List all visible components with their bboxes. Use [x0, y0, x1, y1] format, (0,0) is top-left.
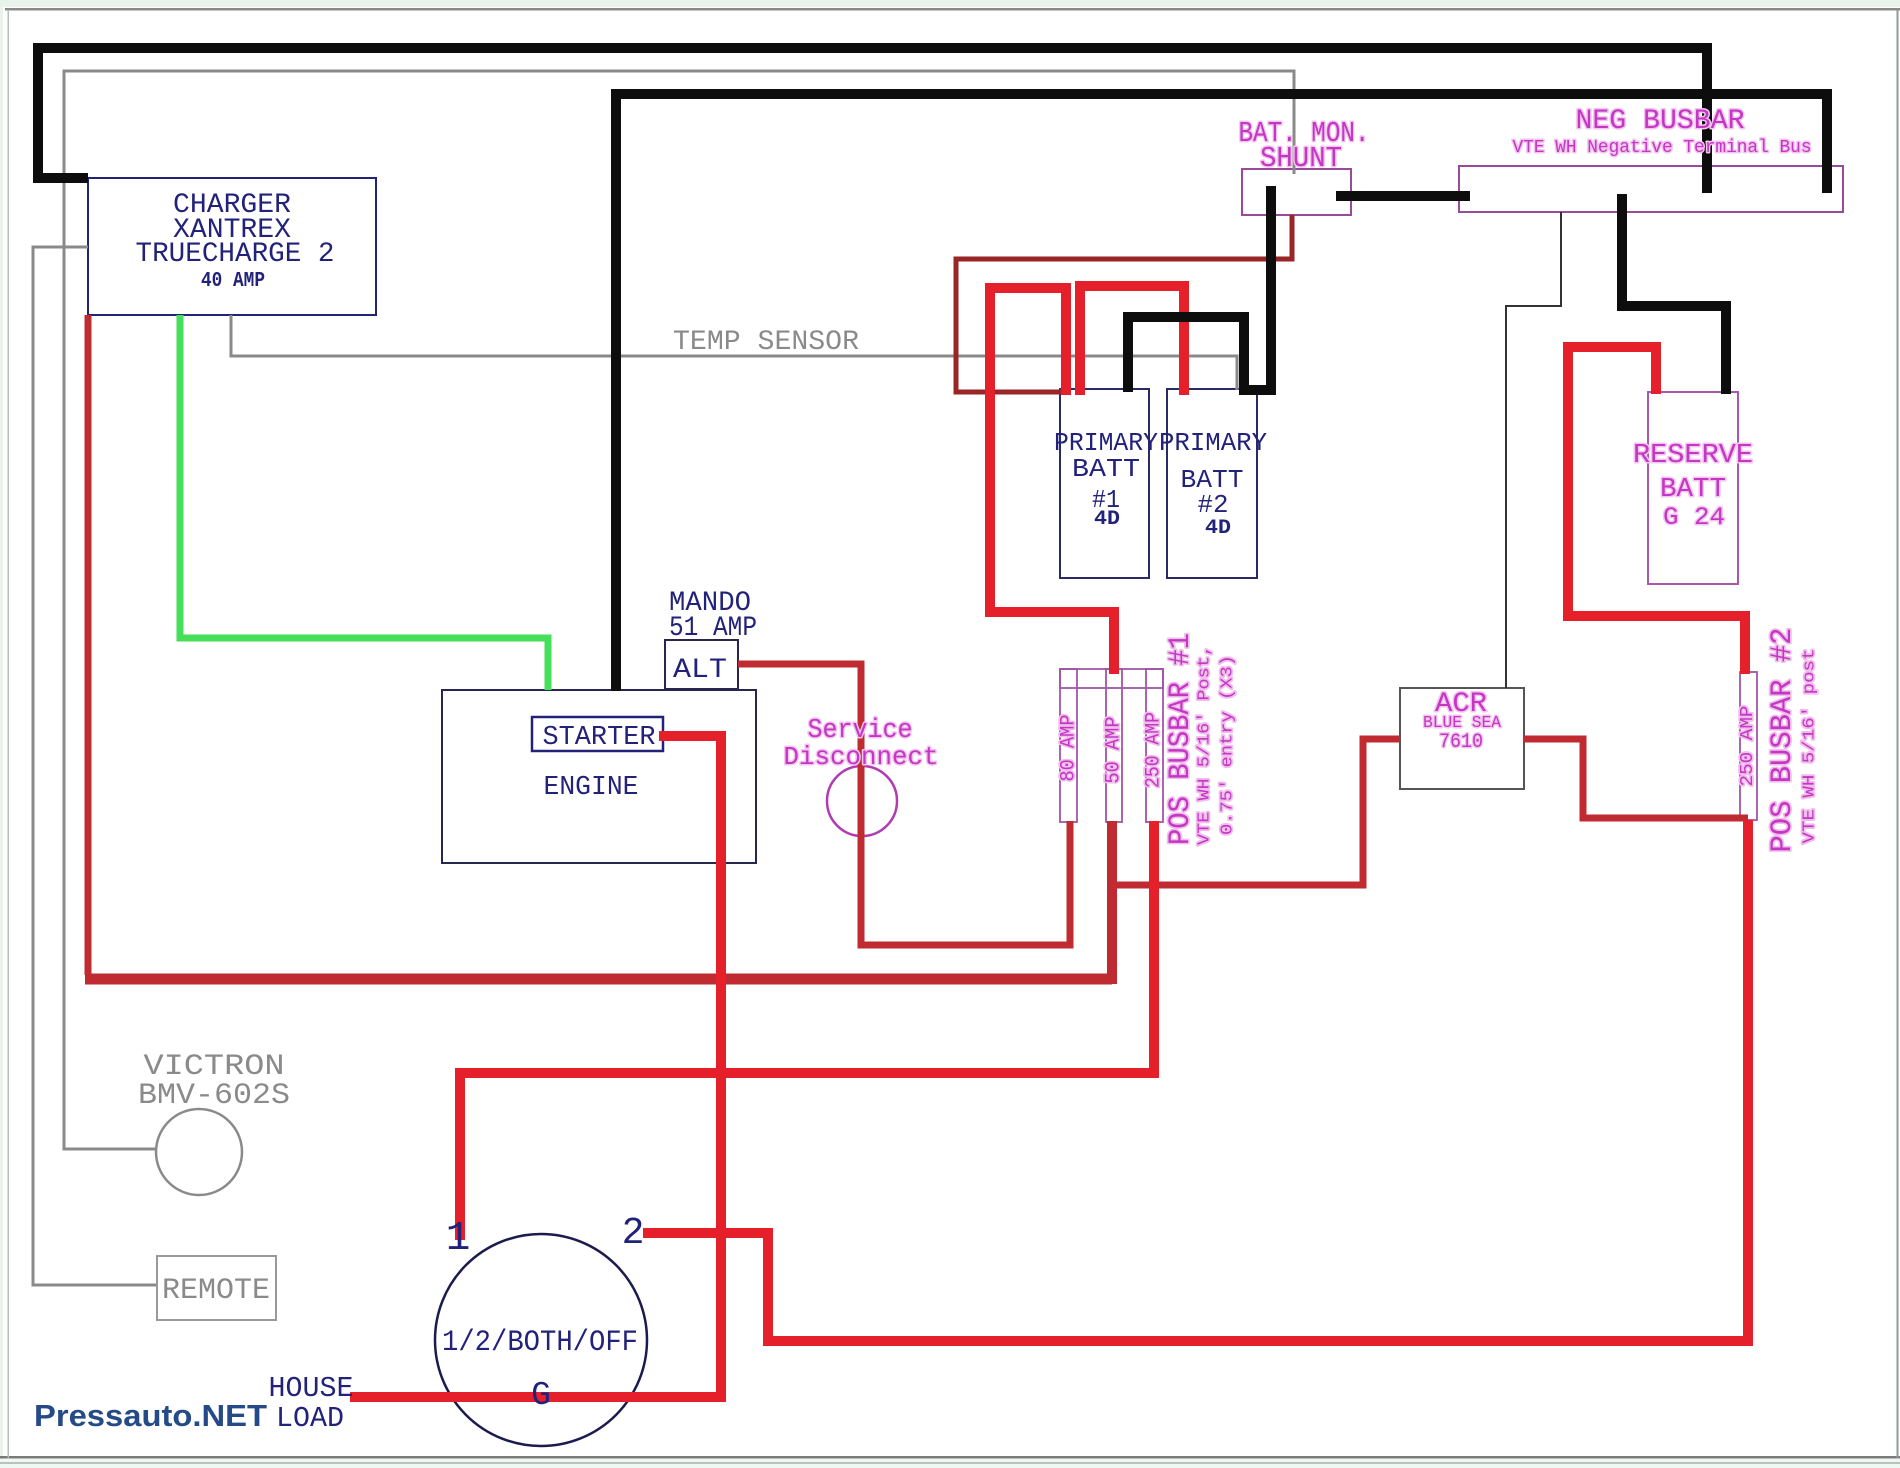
svg-text:ENGINE: ENGINE — [544, 773, 639, 803]
svg-text:BATT: BATT — [1660, 475, 1726, 505]
svg-text:7610: 7610 — [1439, 731, 1483, 754]
svg-text:250 AMP: 250 AMP — [1738, 706, 1758, 787]
svg-text:4D: 4D — [1094, 508, 1120, 531]
svg-text:PRIMARY: PRIMARY — [1159, 428, 1267, 458]
svg-text:RESERVE: RESERVE — [1633, 441, 1753, 471]
svg-text:4D: 4D — [1205, 517, 1231, 540]
svg-text:1: 1 — [446, 1216, 471, 1262]
svg-text:REMOTE: REMOTE — [162, 1274, 270, 1308]
svg-text:Pressauto.NET: Pressauto.NET — [34, 1398, 267, 1433]
svg-text:G 24: G 24 — [1663, 503, 1725, 532]
svg-text:50 AMP: 50 AMP — [1103, 717, 1126, 784]
svg-text:POS BUSBAR #1: POS BUSBAR #1 — [1164, 633, 1198, 845]
svg-text:SHUNT: SHUNT — [1260, 142, 1342, 175]
svg-text:STARTER: STARTER — [543, 723, 656, 753]
svg-text:80 AMP: 80 AMP — [1058, 715, 1081, 782]
svg-text:LOAD: LOAD — [276, 1402, 344, 1435]
svg-text:BMV-602S: BMV-602S — [138, 1079, 290, 1113]
svg-text:ALT: ALT — [673, 655, 727, 686]
svg-text:0.75' entry (X3): 0.75' entry (X3) — [1219, 655, 1238, 835]
svg-text:BATT: BATT — [1072, 454, 1140, 484]
svg-text:Disconnect: Disconnect — [784, 742, 939, 772]
svg-text:VTE WH 5/16' post: VTE WH 5/16' post — [1801, 649, 1820, 844]
svg-text:TEMP SENSOR: TEMP SENSOR — [673, 327, 859, 358]
svg-text:51 AMP: 51 AMP — [669, 613, 757, 644]
svg-text:NEG BUSBAR: NEG BUSBAR — [1576, 106, 1745, 137]
svg-text:TRUECHARGE 2: TRUECHARGE 2 — [136, 239, 335, 270]
svg-text:VTE WH 5/16' Post,: VTE WH 5/16' Post, — [1196, 645, 1215, 845]
svg-text:#2: #2 — [1198, 490, 1229, 520]
svg-text:POS BUSBAR #2: POS BUSBAR #2 — [1766, 628, 1800, 853]
svg-text:250 AMP: 250 AMP — [1143, 712, 1166, 788]
svg-text:2: 2 — [622, 1212, 645, 1255]
svg-text:VTE WH Negative Terminal Bus: VTE WH Negative Terminal Bus — [1513, 138, 1812, 158]
svg-text:G: G — [531, 1377, 551, 1414]
svg-text:1/2/BOTH/OFF: 1/2/BOTH/OFF — [442, 1326, 638, 1360]
svg-text:HOUSE: HOUSE — [269, 1372, 354, 1405]
svg-text:40 AMP: 40 AMP — [201, 270, 265, 293]
